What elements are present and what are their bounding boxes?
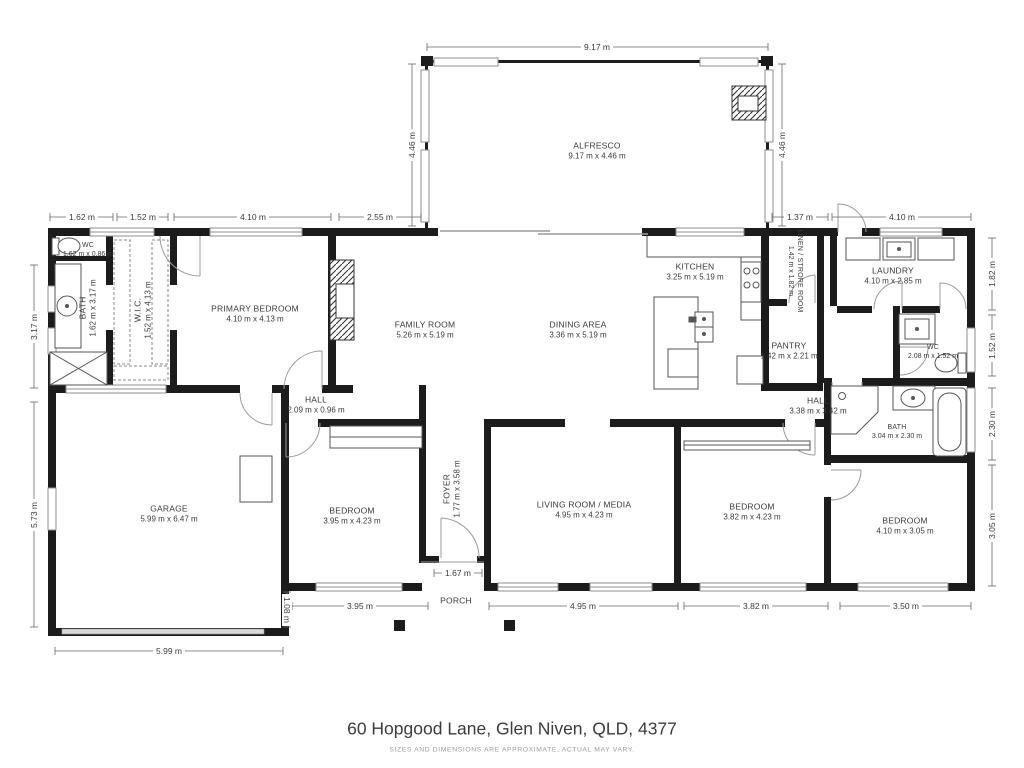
wall-segment [862,378,967,386]
address-title: 60 Hopgood Lane, Glen Niven, QLD, 4377 [347,719,677,740]
wall-segment [322,385,353,393]
wall-segment [817,236,824,383]
screen-panel [434,58,498,66]
room-label-living-media: LIVING ROOM / MEDIA 4.95 m x 4.23 m [537,499,631,520]
door-arc [240,393,272,425]
room-label-hall-rear: HALL 3.38 m x 3.42 m [789,395,846,416]
window [967,328,975,372]
screen-panel [421,150,429,222]
dim-label-bottom-1: 5.99 m [153,646,185,656]
dim-label-alfresco-left: 4.46 m [407,129,417,161]
kitchen-bench [647,236,761,257]
room-label-bath-front: BATH 1.62 m x 3.17 m [77,279,98,336]
door-arc [441,518,479,558]
alfresco-post [421,56,433,66]
room-label-wc-front: WC 1.62 m x 0.86 m [63,241,113,259]
sliding-door [438,228,648,236]
door-arc [940,283,966,309]
dim-label-left-2: 5.73 m [29,499,39,531]
screen-panel [421,70,429,142]
dim-label-bottom-3: 1.67 m [442,568,474,578]
room-label-primary-bedroom: PRIMARY BEDROOM 4.10 m x 4.13 m [211,303,299,324]
door-arc [284,351,322,389]
disclaimer-text: SIZES AND DIMENSIONS ARE APPROXIMATE, AC… [389,747,634,754]
wall-segment [761,299,787,306]
dim-label-bottom-5: 3.82 m [740,601,772,611]
wall-segment [674,419,681,591]
dim-label-top-4: 2.55 m [364,212,396,222]
dim-label-bottom-6: 3.50 m [890,601,922,611]
dim-label-right-3: 2.30 m [987,408,997,440]
room-label-bath-rear: BATH 3.04 m x 2.30 m [872,423,922,441]
door-arc [286,423,320,457]
room-label-bedroom-mid: BEDROOM 3.82 m x 4.23 m [723,501,780,522]
dim-label-alfresco-width: 9.17 m [581,42,613,52]
dim-label-alfresco-right: 4.46 m [777,129,787,161]
wall-segment [610,419,681,427]
room-label-family-room: FAMILY ROOM 5.26 m x 5.19 m [395,319,455,340]
stove-icon [741,262,761,302]
toilet-icon [958,353,966,373]
dim-label-left-1: 3.17 m [29,311,39,343]
wall-segment [837,306,872,313]
laundry-bench [846,238,880,260]
wall-segment [484,419,491,591]
dim-label-bottom-2: 3.95 m [344,601,376,611]
washer-icon [918,238,954,260]
room-label-wic: W.I.C. 1.52 m x 4.13 m [132,281,153,338]
door-arc [838,204,866,232]
dim-label-right-4: 3.05 m [987,510,997,542]
floor-plan: ALFRESCO 9.17 m x 4.46 m WC 1.62 m x 0.8… [0,0,1024,768]
dim-label-porch-depth: 1.08 m [282,594,292,626]
wall-segment [419,385,426,563]
room-label-kitchen: KITCHEN 3.25 m x 5.19 m [666,261,723,282]
alfresco-post [761,56,773,66]
wall-segment [681,419,785,427]
dim-label-top-1: 1.62 m [66,212,98,222]
storage-cabinet [240,456,272,502]
wall-segment [484,419,565,427]
porch-column [504,620,515,631]
wall-segment [761,383,823,391]
dim-label-bottom-4: 4.95 m [567,601,599,611]
wall-segment [170,330,177,390]
door-arc [831,470,861,500]
dim-label-right-2: 1.52 m [987,330,997,362]
wall-segment [902,306,940,313]
dim-label-top-5: 1.37 m [784,212,816,222]
room-label-wc-rear: WC 2.08 m x 1.52 m [908,343,958,361]
wall-segment [824,378,832,386]
dishwasher-icon [668,349,698,377]
pantry-cabinet [737,356,763,384]
wall-segment [830,236,837,306]
room-label-alfresco: ALFRESCO 9.17 m x 4.46 m [568,140,625,161]
wall-segment [170,228,177,285]
dim-label-top-2: 1.52 m [127,212,159,222]
garage-door [62,629,264,634]
wall-segment [824,497,831,591]
room-label-dining-area: DINING AREA 3.36 m x 5.19 m [549,319,606,340]
room-label-bedroom-front: BEDROOM 3.95 m x 4.23 m [323,505,380,526]
dim-label-right-1: 1.82 m [987,258,997,290]
room-label-laundry: LAUNDRY 4.10 m x 2.85 m [864,265,921,286]
room-label-porch: PORCH [440,595,472,606]
porch-column [394,620,405,631]
wall-segment [815,419,824,427]
dim-label-top-3: 4.10 m [237,212,269,222]
room-label-hall-front: HALL 2.09 m x 0.96 m [287,394,344,415]
window [48,488,56,530]
room-label-foyer: FOYER 1.77 m x 3.58 m [441,460,462,517]
room-label-pantry: PANTRY 1.42 m x 2.21 m [760,340,817,361]
room-label-garage: GARAGE 5.99 m x 6.47 m [140,503,197,524]
dim-label-top-6: 4.10 m [886,212,918,222]
screen-panel [700,58,758,66]
room-label-linen-store: LINEN / STRORE ROOM 1.42 m x 1.82 m [786,229,804,312]
room-label-bedroom-rear: BEDROOM 4.10 m x 3.05 m [876,515,933,536]
window [967,388,975,452]
door-arc [160,236,200,276]
wall-segment [272,385,284,393]
screen-panel [765,150,773,222]
bathtub-icon [938,393,961,451]
